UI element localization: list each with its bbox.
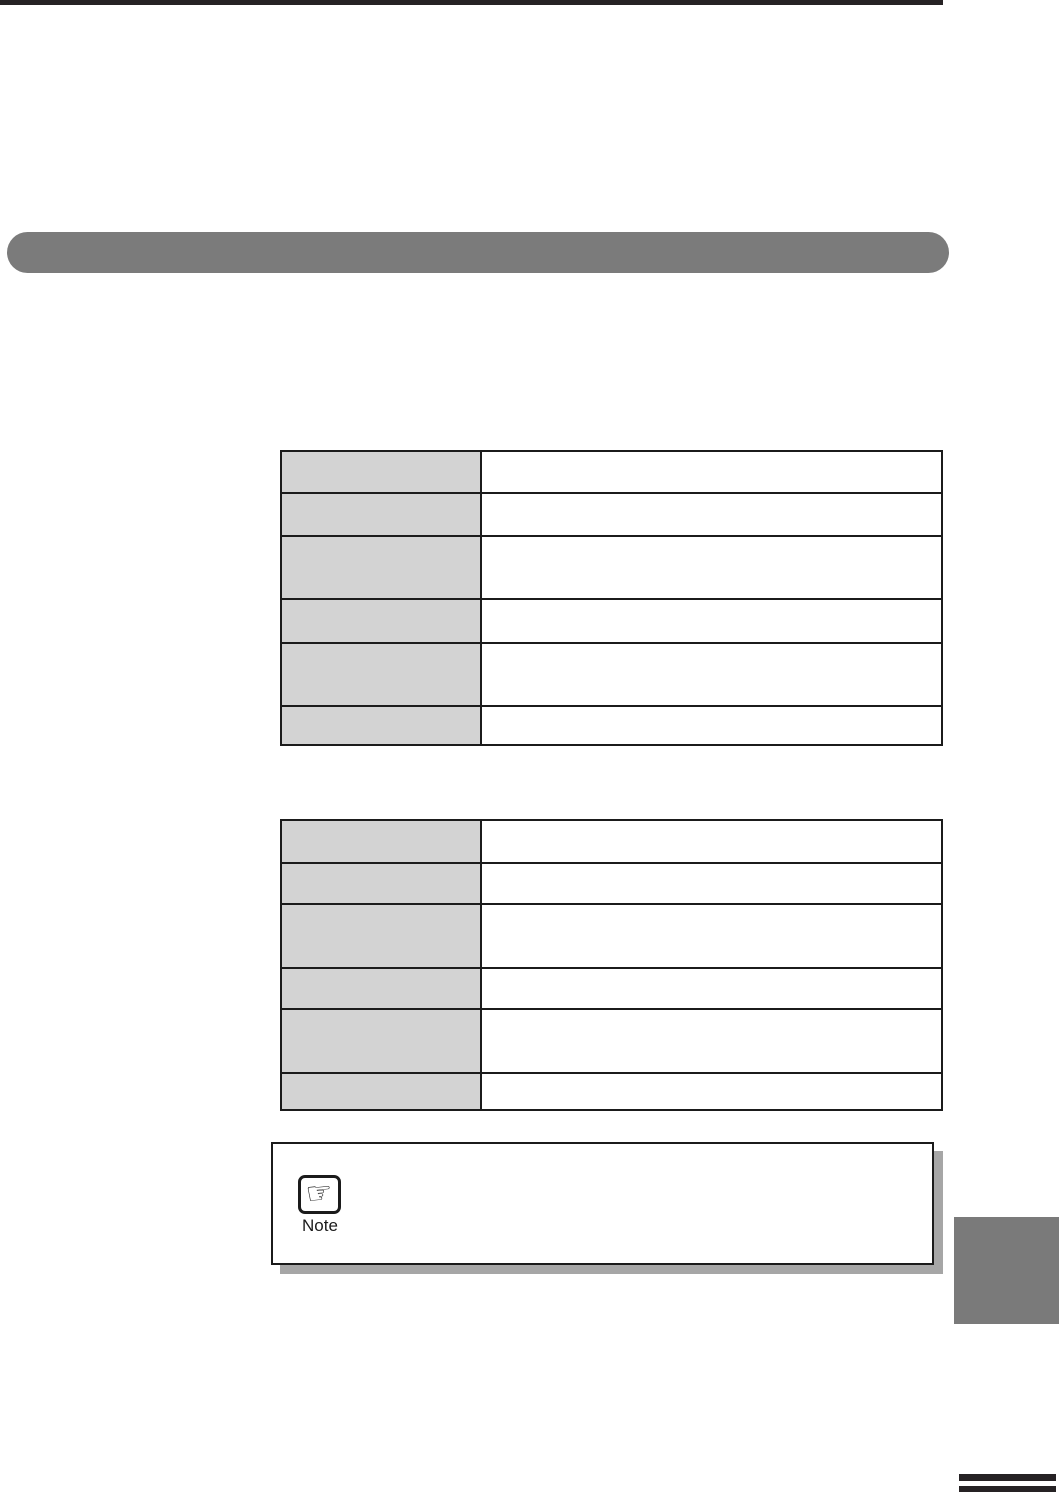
table-row [281, 643, 942, 706]
header-cell [281, 904, 481, 968]
top-rule [0, 0, 943, 5]
note-box: ☞ Note [271, 1142, 934, 1265]
table-row [281, 451, 942, 493]
table-row [281, 706, 942, 745]
value-cell [481, 1009, 942, 1073]
note-label: Note [293, 1216, 347, 1236]
table-row [281, 1009, 942, 1073]
value-cell [481, 820, 942, 863]
spec-table-1 [280, 450, 943, 746]
table-row [281, 820, 942, 863]
note-icon-frame: ☞ [298, 1175, 341, 1214]
header-cell [281, 820, 481, 863]
footer-page-marker-bottom [959, 1486, 1056, 1492]
header-cell [281, 599, 481, 643]
table-row [281, 904, 942, 968]
value-cell [481, 451, 942, 493]
header-cell [281, 968, 481, 1009]
header-cell [281, 536, 481, 599]
value-cell [481, 493, 942, 536]
value-cell [481, 643, 942, 706]
spec-table-2 [280, 819, 943, 1111]
value-cell [481, 863, 942, 904]
value-cell [481, 536, 942, 599]
value-cell [481, 1073, 942, 1110]
table-row [281, 599, 942, 643]
table-row [281, 968, 942, 1009]
table-row [281, 1073, 942, 1110]
header-cell [281, 493, 481, 536]
table-row [281, 493, 942, 536]
value-cell [481, 968, 942, 1009]
header-cell [281, 863, 481, 904]
table-row [281, 863, 942, 904]
header-cell [281, 451, 481, 493]
chapter-tab [954, 1217, 1059, 1324]
section-header-banner [7, 232, 949, 273]
value-cell [481, 706, 942, 745]
table-row [281, 536, 942, 599]
header-cell [281, 1073, 481, 1110]
header-cell [281, 1009, 481, 1073]
pointing-hand-icon: ☞ [304, 1177, 334, 1210]
value-cell [481, 599, 942, 643]
footer-page-marker-top [959, 1474, 1056, 1481]
header-cell [281, 706, 481, 745]
header-cell [281, 643, 481, 706]
value-cell [481, 904, 942, 968]
